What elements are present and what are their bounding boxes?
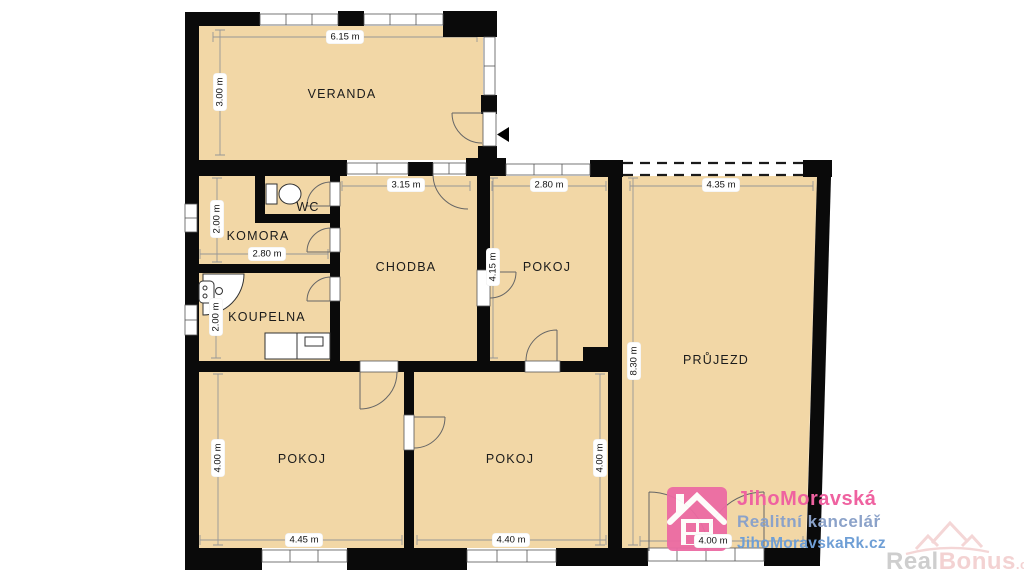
entrance-arrow-icon xyxy=(497,127,509,142)
wall-main-top-pillar xyxy=(408,162,433,176)
wall-left xyxy=(185,12,199,562)
dimension-chodba-width: 3.15 m xyxy=(387,179,424,192)
wall-bottom-3 xyxy=(556,548,648,566)
wall-mid-divider-2 xyxy=(398,361,525,372)
room-label-chodba: CHODBA xyxy=(376,260,437,274)
dimension-prujezd-width: 4.35 m xyxy=(702,179,739,192)
wall-pokoj-divider-b xyxy=(404,450,414,558)
dimension-veranda-width: 6.15 m xyxy=(326,31,363,44)
wall-main-top-2 xyxy=(590,160,623,177)
wall-prujezd-west-a xyxy=(608,177,622,350)
floor-areas xyxy=(197,26,817,548)
room-label-koupelna: KOUPELNA xyxy=(228,310,306,324)
room-label-pokoj-top: POKOJ xyxy=(523,260,571,274)
wall-veranda-top-left xyxy=(185,12,260,26)
threshold-koupelna xyxy=(330,277,340,301)
threshold-pokoj-bl xyxy=(360,361,398,372)
window-chodba-top xyxy=(347,163,408,174)
threshold-pokoj-br xyxy=(525,361,560,372)
dimension-pokoj-top-width: 2.80 m xyxy=(530,179,567,192)
dimension-pokoj-bl-height: 4.00 m xyxy=(212,439,225,476)
threshold-veranda-door xyxy=(483,112,496,146)
portal-watermark: RealBonus.cz xyxy=(886,548,1024,576)
wall-wc-bottom xyxy=(255,214,340,223)
window-koupelna-left xyxy=(185,305,197,335)
room-label-veranda: VERANDA xyxy=(308,87,377,101)
window-pokoj-top xyxy=(506,164,590,175)
wall-main-top-1 xyxy=(185,160,347,176)
portal-watermark-part2: Bonus xyxy=(939,548,1016,575)
bathtub-icon xyxy=(265,333,330,359)
window-komora-left xyxy=(185,204,197,232)
wall-prujezd-west-b xyxy=(608,368,622,548)
portal-watermark-part1: Real xyxy=(886,548,939,575)
window-bottom-left xyxy=(262,550,347,562)
wall-veranda-top-right-corner xyxy=(443,11,497,37)
wall-chodba-west-a xyxy=(330,176,340,182)
wall-chodba-east-b xyxy=(477,306,490,361)
dimension-komora-width: 2.80 m xyxy=(248,248,285,261)
dimension-veranda-height: 3.00 m xyxy=(214,73,227,110)
floor-plan: VERANDA WC KOMORA KOUPELNA CHODBA POKOJ … xyxy=(0,0,1024,576)
wall-mid-divider-1 xyxy=(197,361,360,372)
wall-chodba-west-d xyxy=(330,301,340,361)
room-label-prujezd: PRŮJEZD xyxy=(683,353,749,367)
dimension-pokoj-br-height: 4.00 m xyxy=(594,439,607,476)
wall-veranda-right-block xyxy=(481,95,497,114)
room-label-komora: KOMORA xyxy=(227,229,290,243)
agency-watermark-website: JihoMoravskaRk.cz xyxy=(737,535,886,553)
window-bottom-right xyxy=(467,550,556,562)
dimension-komora-height: 2.00 m xyxy=(211,200,224,237)
window-veranda-top-1 xyxy=(260,14,338,25)
wall-chodba-west-b xyxy=(330,206,340,228)
portal-watermark-tld: .cz xyxy=(1016,557,1024,572)
dimension-pokoj-br-width: 4.40 m xyxy=(492,534,529,547)
room-label-pokoj-br: POKOJ xyxy=(486,452,534,466)
dimension-prujezd-door-width: 4.00 m xyxy=(694,535,731,548)
wall-komora-koupelna xyxy=(185,264,338,273)
agency-watermark-brand: JihoMoravská xyxy=(737,488,876,511)
wall-prujezd-top-corner xyxy=(803,160,832,177)
dimension-prujezd-height: 8.30 m xyxy=(628,342,641,379)
wall-pokoj-divider-a xyxy=(404,361,414,415)
window-veranda-right xyxy=(484,37,495,95)
wall-main-top-tee xyxy=(466,158,506,176)
agency-watermark-tagline: Realitní kancelář xyxy=(737,512,881,532)
door-band-veranda-chodba xyxy=(433,163,466,174)
dimension-koupelna-height: 2.00 m xyxy=(210,298,223,335)
wall-prujezd-notch xyxy=(583,347,622,370)
dimension-pokoj-top-height: 4.15 m xyxy=(487,248,500,285)
wall-wc-left xyxy=(255,176,265,216)
room-label-pokoj-bl: POKOJ xyxy=(278,452,326,466)
open-edge-dashed xyxy=(623,163,803,175)
threshold-komora xyxy=(330,228,340,252)
wall-chodba-west-c xyxy=(330,252,340,277)
dimension-pokoj-bl-width: 4.45 m xyxy=(285,534,322,547)
wall-veranda-top-pillar xyxy=(338,11,364,26)
threshold-wc xyxy=(330,182,340,206)
wall-bottom-1 xyxy=(185,548,262,570)
window-veranda-top-2 xyxy=(364,14,443,25)
threshold-pokoj-pokoj xyxy=(404,415,414,450)
room-label-wc: WC xyxy=(296,200,319,214)
